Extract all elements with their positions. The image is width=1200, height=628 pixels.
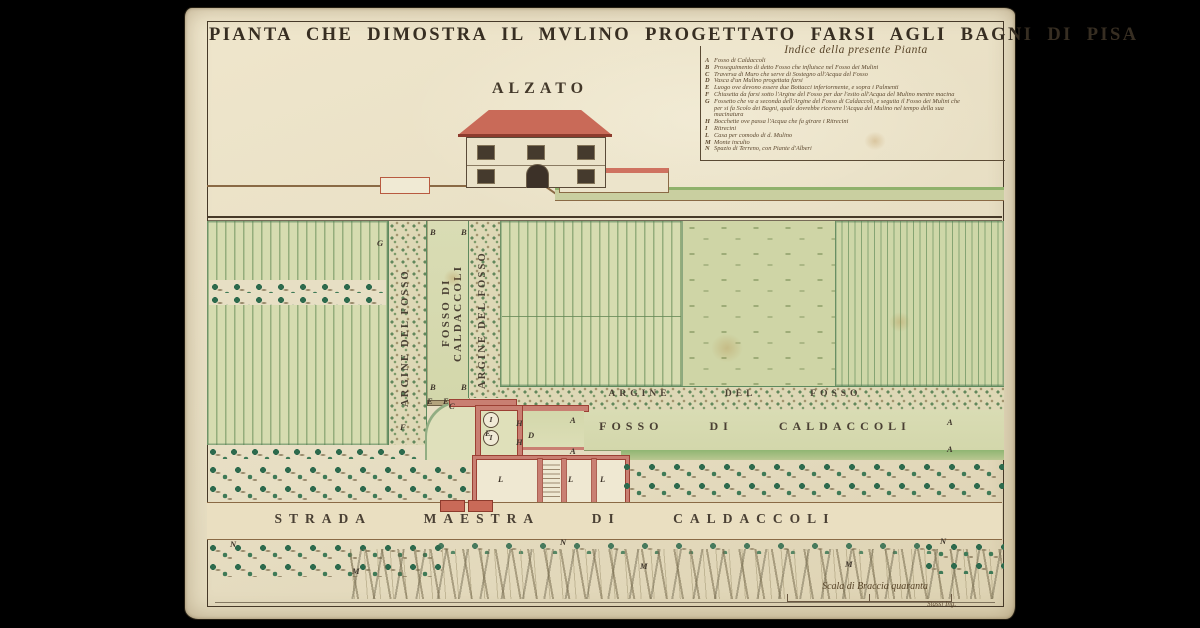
legend-text: Spazio di Terreno, con Piante d'Alberi	[714, 146, 961, 153]
window	[477, 145, 495, 160]
field-center	[500, 221, 683, 386]
interior-wall	[592, 459, 596, 504]
index-title: Indice della presente Pianta	[741, 44, 971, 56]
screenshot-stage: PIANTA CHE DIMOSTRA IL MVLINO PROGETTATO…	[0, 0, 1200, 628]
mill-house-elevation	[458, 110, 612, 186]
legend-item-G: GFossetto che va a seconda dell'Argine d…	[705, 99, 961, 119]
tree-grove-left	[207, 463, 473, 502]
canal-south-green-bank	[621, 450, 1004, 460]
scale-label: Scala di Braccia quaranta	[785, 581, 965, 592]
meadow	[683, 221, 835, 386]
tree-row-left	[207, 445, 420, 463]
legend-text: Casa per comodo di d. Mulino	[714, 133, 961, 140]
roof	[458, 110, 612, 135]
canal-vertical-label: FOSSO DI CALDACCOLI	[440, 233, 464, 393]
road-label: STRADA MAESTRA DI CALDACCOLI	[255, 511, 855, 527]
legend-item-H: HBocchette ove passa l'Acqua che fa gira…	[705, 119, 961, 126]
canal-horizontal-label: FOSSO DI CALDACCOLI	[535, 419, 975, 434]
legend-text: Fossetto che va a seconda dell'Argine de…	[714, 99, 961, 119]
bank-right-label: ARGINE DEL FOSSO	[477, 248, 488, 393]
arched-door	[526, 164, 549, 188]
index-panel: Indice della presente Pianta AFosso di C…	[700, 46, 1005, 161]
legend-key: G	[705, 99, 714, 119]
legend-text: Bocchette ove passa l'Acqua che fa girar…	[714, 119, 961, 126]
field-right	[835, 221, 1004, 386]
tree-row-in-field	[209, 280, 386, 305]
window	[477, 169, 495, 184]
mill-dwelling	[473, 456, 629, 507]
waterwheel: I	[483, 412, 499, 428]
bank-left-label: ARGINE DEL FOSSO	[400, 248, 411, 428]
elevation-basin	[380, 177, 430, 194]
house-facade	[466, 137, 606, 188]
manuscript-sheet: PIANTA CHE DIMOSTRA IL MVLINO PROGETTATO…	[185, 8, 1015, 619]
legend-item-N: NSpazio di Terreno, con Piante d'Alberi	[705, 146, 961, 153]
mill-wheel-room	[476, 406, 522, 460]
scale-tick	[869, 594, 870, 601]
field-divider	[502, 316, 681, 317]
scale-tick	[787, 594, 788, 601]
bank-horizontal-label: ARGINE DEL FOSSO	[515, 389, 955, 399]
staircase	[543, 463, 560, 497]
field-left	[207, 221, 388, 445]
waterwheel: I	[483, 430, 499, 446]
legend-key: N	[705, 146, 714, 153]
plan-top-rule	[207, 216, 1002, 218]
interior-wall	[562, 459, 566, 504]
window	[527, 145, 545, 160]
alzato-label: ALZATO	[485, 80, 595, 98]
mill-basin	[518, 411, 584, 450]
window	[577, 145, 595, 160]
tree-grove-bottom-right	[923, 540, 1004, 574]
tree-belt-right	[621, 460, 1004, 502]
legend-items: AFosso di CaldaccoliBProseguimento di de…	[705, 58, 961, 153]
window	[577, 169, 595, 184]
signature: Stassi Ing.	[927, 600, 956, 608]
interior-wall	[538, 459, 542, 504]
